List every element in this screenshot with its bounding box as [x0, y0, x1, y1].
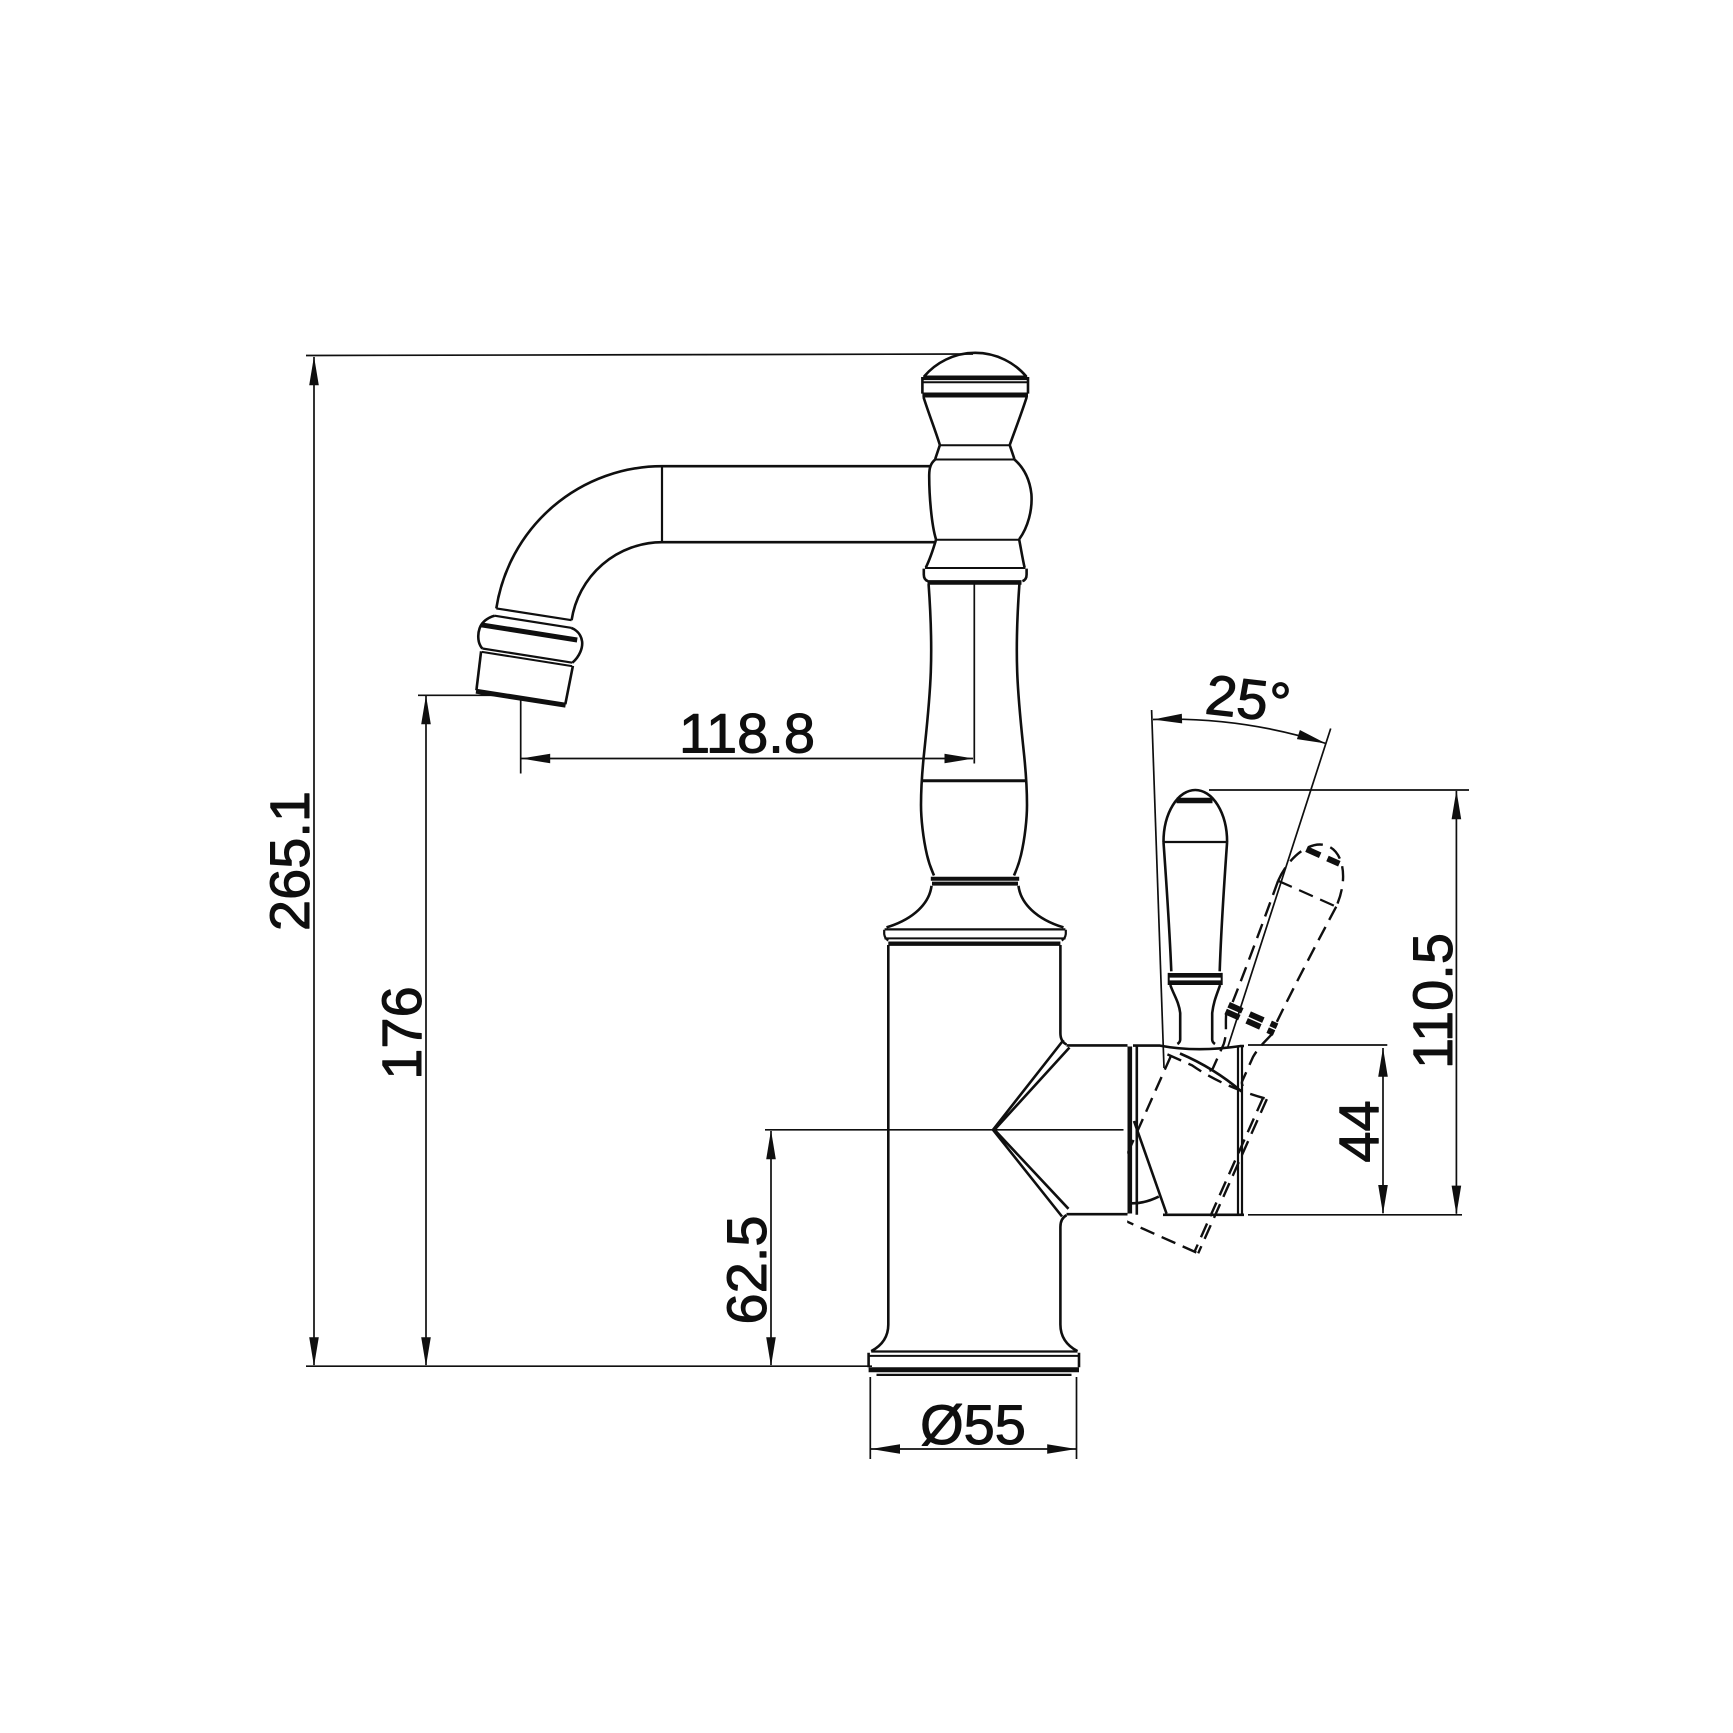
svg-text:Ø55: Ø55: [920, 1393, 1026, 1456]
svg-text:265.1: 265.1: [258, 791, 321, 931]
svg-text:110.5: 110.5: [1401, 933, 1464, 1069]
svg-text:118.8: 118.8: [679, 702, 815, 765]
svg-text:44: 44: [1327, 1100, 1390, 1162]
svg-text:176: 176: [370, 986, 433, 1079]
svg-text:25°: 25°: [1203, 663, 1294, 735]
svg-text:62.5: 62.5: [715, 1216, 778, 1325]
